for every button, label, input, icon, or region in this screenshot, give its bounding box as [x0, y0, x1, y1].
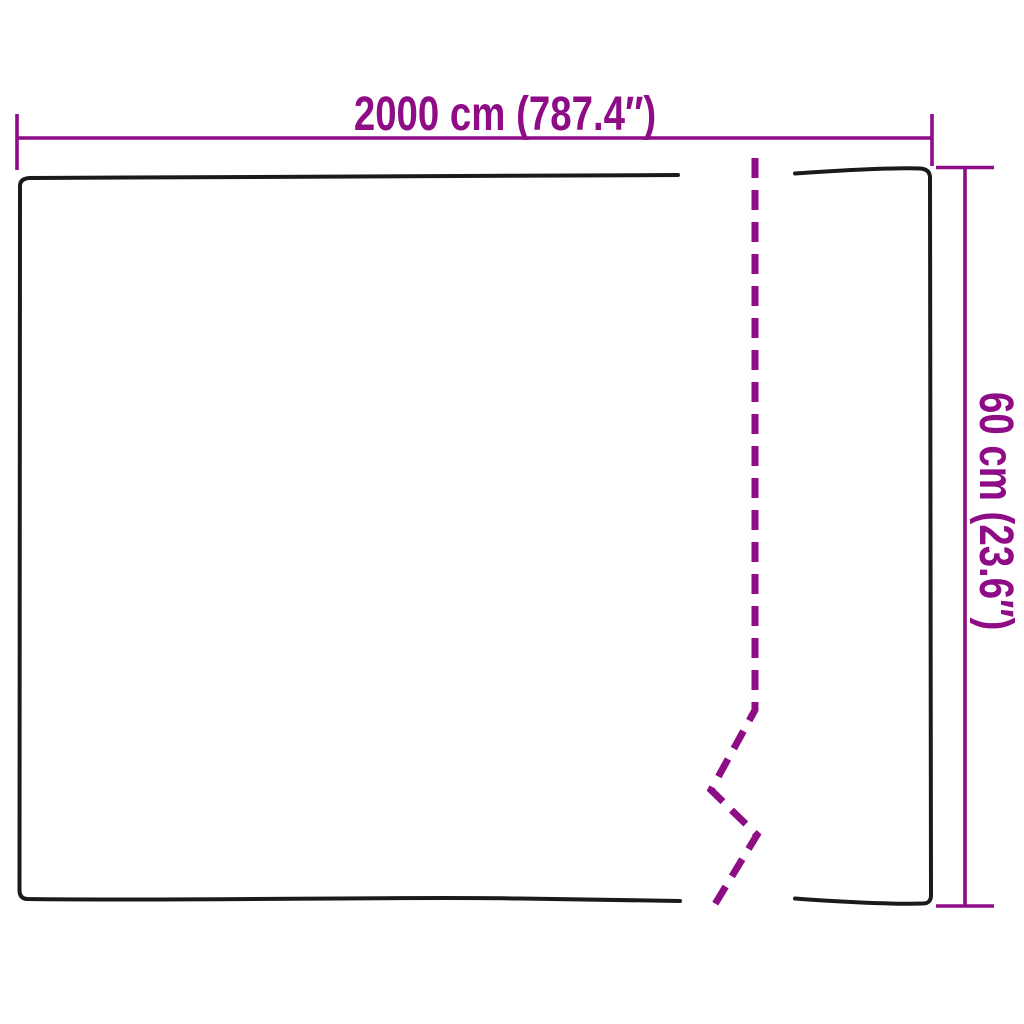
sheet-outline-right-section — [795, 168, 931, 903]
diagram-graphics — [0, 0, 1024, 1024]
width-dimension-label: 2000 cm (787.4″) — [101, 91, 909, 139]
fold-dashed-line — [711, 158, 757, 909]
product-dimension-diagram: 2000 cm (787.4″) 60 cm (23.6″) — [0, 0, 1024, 1024]
sheet-outline-left-section — [20, 175, 681, 901]
sheet-outline — [20, 168, 932, 903]
height-dimension-label: 60 cm (23.6″) — [971, 392, 1019, 630]
